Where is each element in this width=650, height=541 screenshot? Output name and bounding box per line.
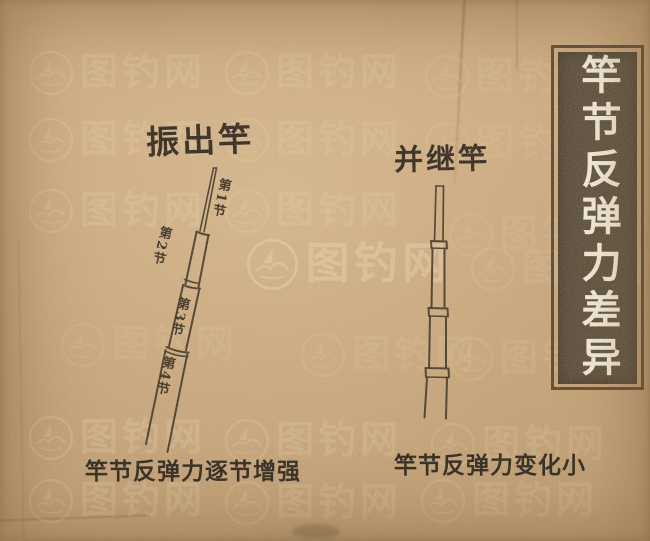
watermark: 图钓网 — [60, 322, 238, 368]
watermark-text: 图钓网 — [80, 54, 206, 92]
watermark: 图钓网 — [224, 480, 402, 526]
boat-in-circle-icon — [28, 50, 74, 96]
boat-in-circle-icon — [246, 238, 299, 291]
watermark: 图钓网 — [224, 188, 402, 234]
watermark: 图钓网 — [246, 238, 451, 291]
section-label-1: 第1节 — [210, 177, 231, 220]
section-label-4: 第4节 — [154, 355, 175, 398]
watermark-text: 图钓网 — [352, 336, 478, 374]
telescopic-rod-caption: 竿节反弹力逐节增强 — [85, 452, 301, 486]
section-label-2: 第2节 — [149, 224, 172, 267]
paper-crease-horizontal — [0, 514, 150, 521]
watermark-text: 图钓网 — [306, 243, 451, 287]
watermark: 图钓网 — [224, 50, 402, 96]
watermark-text: 图钓网 — [80, 482, 206, 520]
jointed-rod-caption: 竿节反弹力变化小 — [394, 446, 586, 480]
watermark: 图钓网 — [420, 478, 598, 524]
boat-in-circle-icon — [448, 212, 494, 258]
watermark-text: 图钓网 — [276, 121, 402, 159]
boat-in-circle-icon — [300, 332, 346, 378]
boat-in-circle-icon — [28, 478, 74, 524]
boat-in-circle-icon — [28, 188, 74, 234]
boat-in-circle-icon — [224, 188, 270, 234]
watermark: 图钓网 — [28, 50, 206, 96]
boat-in-circle-icon — [448, 336, 494, 382]
boat-in-circle-icon — [424, 54, 470, 100]
boat-in-circle-icon — [224, 50, 270, 96]
watermark: 图钓网 — [28, 188, 206, 234]
title-banner-panel: 竿节反弹力差异 — [558, 52, 637, 384]
title-banner: 竿节反弹力差异 — [551, 45, 644, 390]
telescopic-rod-title: 振出竿 — [145, 112, 255, 164]
boat-in-circle-icon — [28, 415, 74, 461]
watermark-text: 图钓网 — [80, 192, 206, 230]
watermark-text: 图钓网 — [276, 54, 402, 92]
section-label-3: 第3节 — [168, 296, 190, 339]
boat-in-circle-icon — [420, 478, 466, 524]
page-title: 竿节反弹力差异 — [578, 54, 618, 383]
boat-in-circle-icon — [470, 246, 516, 292]
jointed-rod-title: 并继竿 — [394, 135, 491, 179]
watermark: 图钓网 — [300, 332, 478, 378]
boat-in-circle-icon — [28, 117, 74, 163]
watermark-text: 图钓网 — [472, 482, 598, 520]
ink-smudge — [292, 524, 340, 539]
paper-crease-vertical — [17, 240, 24, 540]
paper-crease-vertical — [516, 0, 518, 70]
watermark-text: 图钓网 — [276, 192, 402, 230]
watermark-text: 图钓网 — [276, 484, 402, 522]
jointed-rod-drawing — [425, 186, 450, 419]
kraft-paper-page: 图钓网图钓网图钓网图钓网图钓网图钓网图钓网图钓网图钓网图钓网图钓网图钓网图钓网图… — [0, 0, 650, 541]
boat-in-circle-icon — [224, 480, 270, 526]
boat-in-circle-icon — [60, 322, 106, 368]
